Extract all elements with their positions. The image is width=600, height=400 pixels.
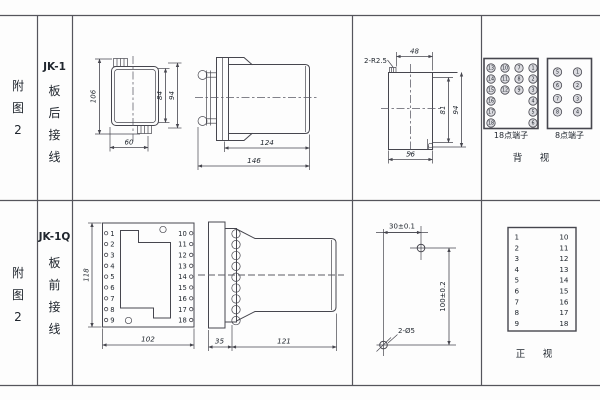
- dim-121: 121: [277, 337, 291, 346]
- svg-text:6: 6: [110, 284, 114, 292]
- terminal-block-18: 131415161718 101112 789 123456 18点端子: [484, 59, 538, 141]
- dim-81: 81: [439, 106, 447, 115]
- svg-text:7: 7: [556, 96, 559, 102]
- svg-text:4: 4: [576, 110, 579, 116]
- svg-text:15: 15: [178, 284, 187, 292]
- svg-text:10: 10: [178, 230, 187, 238]
- svg-text:7: 7: [515, 297, 520, 306]
- svg-text:2: 2: [531, 77, 534, 83]
- svg-text:1: 1: [110, 230, 114, 238]
- dim-94: 94: [168, 91, 176, 100]
- svg-text:18: 18: [178, 317, 187, 325]
- svg-text:9: 9: [515, 319, 520, 328]
- dim-84: 84: [156, 91, 164, 100]
- dim-35: 35: [215, 337, 225, 346]
- svg-text:JK-1: JK-1: [42, 61, 66, 73]
- drilling-plan: 30±0.1 100±0.2 2-Ø5: [376, 223, 456, 357]
- svg-text:5: 5: [110, 273, 114, 281]
- svg-text:12: 12: [559, 254, 568, 263]
- terminal-block-8: 5678 1234 8点端子: [548, 59, 592, 141]
- dim-48: 48: [410, 48, 419, 56]
- svg-text:板: 板: [48, 84, 60, 98]
- svg-text:15: 15: [559, 287, 568, 296]
- svg-text:7: 7: [517, 66, 520, 72]
- svg-text:6: 6: [515, 287, 520, 296]
- dim-100: 100±0.2: [439, 281, 447, 311]
- svg-text:13: 13: [178, 262, 187, 270]
- dim-94b: 94: [452, 106, 460, 115]
- svg-text:1: 1: [515, 233, 520, 242]
- svg-text:14: 14: [178, 273, 187, 281]
- svg-text:11: 11: [502, 77, 508, 83]
- svg-text:图: 图: [12, 288, 24, 302]
- svg-text:4: 4: [110, 262, 114, 270]
- svg-text:9: 9: [110, 317, 114, 325]
- screw-top: [198, 71, 217, 80]
- svg-text:2: 2: [576, 83, 579, 89]
- svg-text:接: 接: [48, 299, 60, 314]
- svg-text:18: 18: [488, 121, 494, 127]
- svg-text:5: 5: [531, 110, 534, 116]
- svg-text:1: 1: [576, 70, 579, 76]
- svg-text:11: 11: [559, 243, 568, 252]
- svg-text:6: 6: [556, 83, 559, 89]
- svg-text:2: 2: [515, 243, 520, 252]
- dim-102: 102: [141, 335, 155, 344]
- row2-model-label: JK-1Q 板 前 接 线: [38, 231, 71, 336]
- svg-text:14: 14: [559, 276, 569, 285]
- svg-text:2: 2: [110, 241, 114, 249]
- svg-text:接: 接: [48, 127, 60, 142]
- svg-text:线: 线: [48, 150, 60, 164]
- svg-text:图: 图: [12, 101, 24, 115]
- dim-56: 56: [406, 151, 415, 159]
- terminal-table: 123456789 101112131415161718: [508, 228, 576, 332]
- svg-text:16: 16: [178, 295, 187, 303]
- svg-text:14: 14: [488, 77, 494, 83]
- radius-note: 2-R2.5: [364, 57, 387, 65]
- svg-text:5: 5: [515, 276, 520, 285]
- svg-text:5: 5: [556, 70, 559, 76]
- svg-text:4: 4: [531, 99, 534, 105]
- svg-text:17: 17: [488, 110, 494, 116]
- jk1-side-view: 124 146: [195, 58, 318, 171]
- svg-text:附: 附: [12, 266, 24, 280]
- svg-text:11: 11: [178, 241, 187, 249]
- svg-text:2: 2: [14, 123, 22, 137]
- screw-bottom: [198, 117, 217, 126]
- back-view-label: 背 视: [513, 152, 554, 164]
- dim-124: 124: [260, 138, 274, 147]
- svg-text:附: 附: [12, 79, 24, 93]
- sheet-grid: [0, 16, 600, 386]
- svg-text:15: 15: [488, 88, 494, 94]
- svg-text:8: 8: [515, 308, 520, 317]
- jk1-rear-view: 2-R2.5 48 81 94 56: [364, 48, 466, 164]
- svg-text:18: 18: [559, 319, 569, 328]
- dim-106: 106: [90, 89, 98, 103]
- row1-figure-label: 附 图 2: [12, 79, 24, 137]
- front-terminals-right: 101112131415161718: [178, 230, 193, 325]
- svg-text:板: 板: [48, 256, 60, 270]
- svg-text:10: 10: [502, 66, 508, 72]
- dim-30: 30±0.1: [389, 223, 415, 231]
- dim-60: 60: [125, 139, 134, 147]
- svg-text:6: 6: [531, 121, 534, 127]
- svg-text:17: 17: [559, 308, 568, 317]
- svg-text:9: 9: [517, 88, 520, 94]
- svg-text:3: 3: [531, 88, 534, 94]
- holes-note: 2-Ø5: [398, 327, 415, 335]
- jk1q-front-view: 123456789 101112131415161718 118 102: [83, 223, 195, 349]
- svg-text:16: 16: [559, 297, 569, 306]
- svg-text:13: 13: [559, 265, 568, 274]
- row1-model-label: JK-1 板 后 接 线: [42, 61, 66, 164]
- svg-text:线: 线: [48, 322, 60, 336]
- svg-text:3: 3: [576, 96, 579, 102]
- technical-drawing-sheet: 附 图 2 JK-1 板 后 接 线 106 84: [0, 0, 600, 400]
- svg-text:12: 12: [502, 88, 508, 94]
- jk1q-side-view: 35 121: [198, 222, 344, 351]
- drawing-canvas: 附 图 2 JK-1 板 后 接 线 106 84: [0, 0, 600, 400]
- row2-figure-label: 附 图 2: [12, 266, 24, 324]
- svg-text:7: 7: [110, 295, 114, 303]
- svg-text:12: 12: [178, 252, 187, 260]
- jk1-case-view: 106 84 94 60: [90, 56, 182, 152]
- svg-text:4: 4: [515, 265, 520, 274]
- dim-118: 118: [83, 268, 91, 282]
- svg-text:8: 8: [110, 306, 114, 314]
- svg-text:8: 8: [556, 110, 559, 116]
- svg-text:10: 10: [559, 233, 569, 242]
- mount-hole-top: [160, 226, 166, 232]
- svg-text:1: 1: [531, 66, 534, 72]
- front-terminals-left: 123456789: [104, 230, 114, 325]
- svg-text:17: 17: [178, 306, 187, 314]
- svg-text:13: 13: [488, 66, 494, 72]
- terminal18-label: 18点端子: [494, 130, 528, 140]
- svg-text:3: 3: [110, 252, 114, 260]
- svg-text:2: 2: [14, 310, 22, 324]
- terminal8-label: 8点端子: [555, 130, 584, 140]
- svg-text:3: 3: [515, 254, 520, 263]
- mount-hole-bottom: [125, 317, 131, 323]
- svg-text:16: 16: [488, 99, 494, 105]
- svg-text:后: 后: [48, 106, 60, 120]
- svg-text:JK-1Q: JK-1Q: [38, 231, 71, 243]
- front-view-label: 正 视: [516, 348, 557, 360]
- svg-text:前: 前: [48, 277, 60, 292]
- dim-146: 146: [247, 156, 261, 165]
- svg-text:8: 8: [517, 77, 520, 83]
